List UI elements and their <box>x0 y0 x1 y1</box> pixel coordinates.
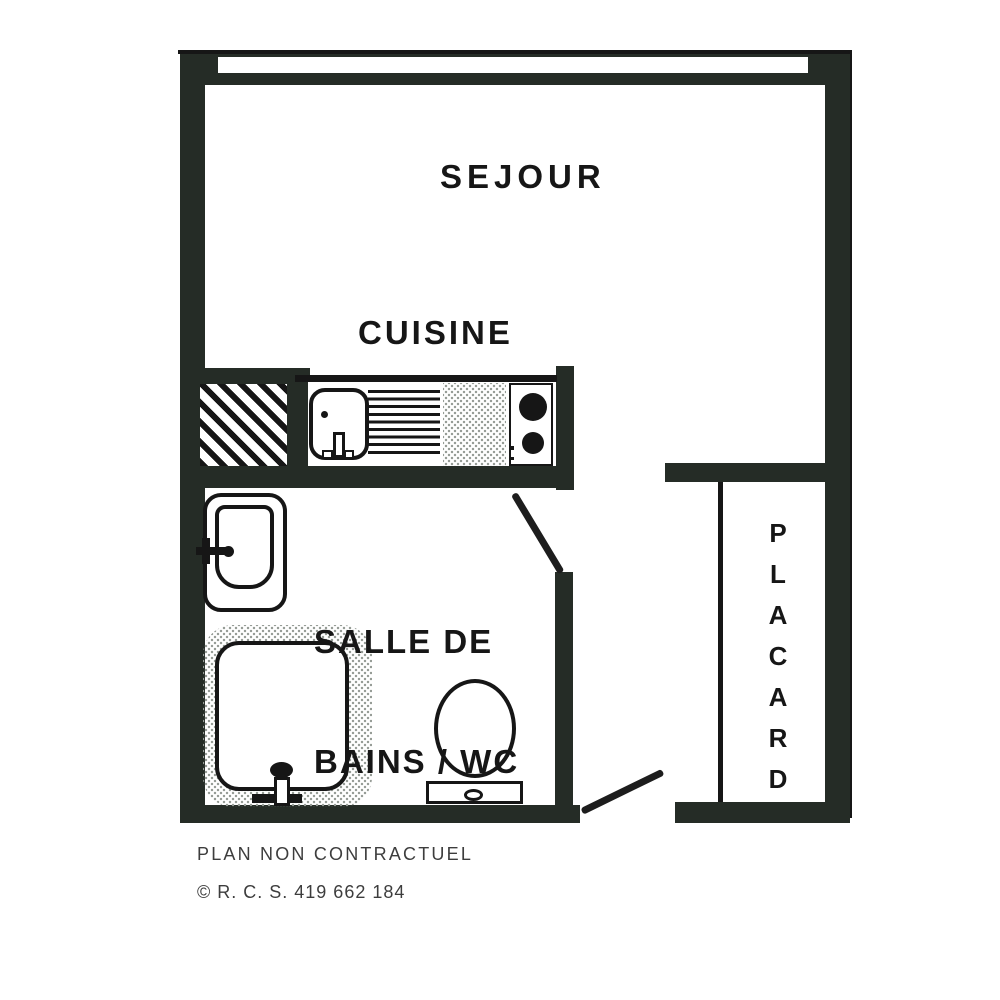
wall-bathroom-column <box>555 572 573 805</box>
registration-number: © R. C. S. 419 662 184 <box>197 882 405 903</box>
kitchen-counter-edge <box>295 375 557 382</box>
bathtub-tap-bar-left <box>252 794 276 803</box>
wall-placard-top <box>665 463 827 482</box>
burner-small-icon <box>522 432 544 454</box>
entrance-door-swing <box>580 769 664 815</box>
room-label-bathroom: SALLE DE BAINS / WC <box>314 542 519 862</box>
drainboard-icon <box>368 390 440 457</box>
wall-right <box>825 54 850 823</box>
window-opening <box>218 57 808 73</box>
burner-large-icon <box>519 393 547 421</box>
floor-plan: SEJOUR CUISINE SALLE DE BAINS / WC PLACA… <box>0 0 1000 1000</box>
room-label-bathroom-line1: SALLE DE <box>314 622 519 662</box>
room-label-bathroom-line2: BAINS / WC <box>314 742 519 782</box>
sink-tap-base-left <box>322 450 333 459</box>
kitchen-duct-hatch <box>200 384 287 466</box>
counter-worktop <box>443 383 506 466</box>
wall-kitchen-stub <box>556 366 574 490</box>
room-label-placard: PLACARD <box>762 518 793 805</box>
plan-disclaimer: PLAN NON CONTRACTUEL <box>197 844 473 865</box>
basin-tap-knob <box>223 546 234 557</box>
basin-tap-bar <box>196 547 226 555</box>
sink-drain-icon <box>321 411 328 418</box>
wall-bottom-right <box>675 802 850 823</box>
room-label-sejour: SEJOUR <box>440 158 606 196</box>
bathtub-tap-bar-right <box>290 794 302 803</box>
placard-front-line <box>718 482 723 802</box>
wall-kitchen-duct-side <box>287 368 310 466</box>
sink-faucet-icon <box>333 432 345 458</box>
wall-right-outline <box>850 52 852 818</box>
bathtub-faucet-icon <box>274 777 290 806</box>
stove-knob-1 <box>509 446 514 450</box>
stove-knob-2 <box>509 457 514 460</box>
wall-kitchen-bathroom <box>200 466 557 488</box>
sink-tap-base-right <box>344 450 354 459</box>
room-label-cuisine: CUISINE <box>358 314 513 352</box>
bathtub-drain-icon <box>270 762 293 778</box>
